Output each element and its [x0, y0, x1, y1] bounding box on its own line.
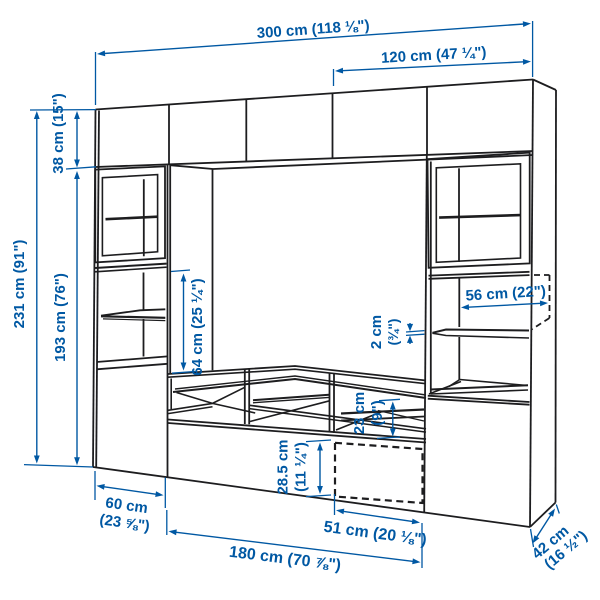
- svg-text:231 cm (91"): 231 cm (91"): [11, 240, 28, 329]
- svg-text:64 cm (25 ¼"): 64 cm (25 ¼"): [189, 278, 206, 375]
- svg-text:193 cm (76"): 193 cm (76"): [52, 273, 69, 362]
- svg-text:56 cm (22"): 56 cm (22"): [465, 283, 546, 305]
- svg-text:(11 ¼"): (11 ¼"): [293, 442, 310, 492]
- svg-text:180 cm (70 ⅞"): 180 cm (70 ⅞"): [228, 544, 342, 575]
- svg-text:120 cm (47 ¼"): 120 cm (47 ¼"): [381, 44, 487, 67]
- svg-text:23 cm: 23 cm: [351, 392, 368, 435]
- svg-text:2 cm: 2 cm: [368, 315, 385, 349]
- svg-text:(9"): (9"): [369, 400, 386, 425]
- svg-text:51 cm (20 ⅛"): 51 cm (20 ⅛"): [323, 519, 428, 549]
- svg-text:(¾"): (¾"): [386, 319, 401, 346]
- svg-text:38 cm (15"): 38 cm (15"): [50, 93, 67, 174]
- svg-text:28.5 cm: 28.5 cm: [275, 439, 292, 494]
